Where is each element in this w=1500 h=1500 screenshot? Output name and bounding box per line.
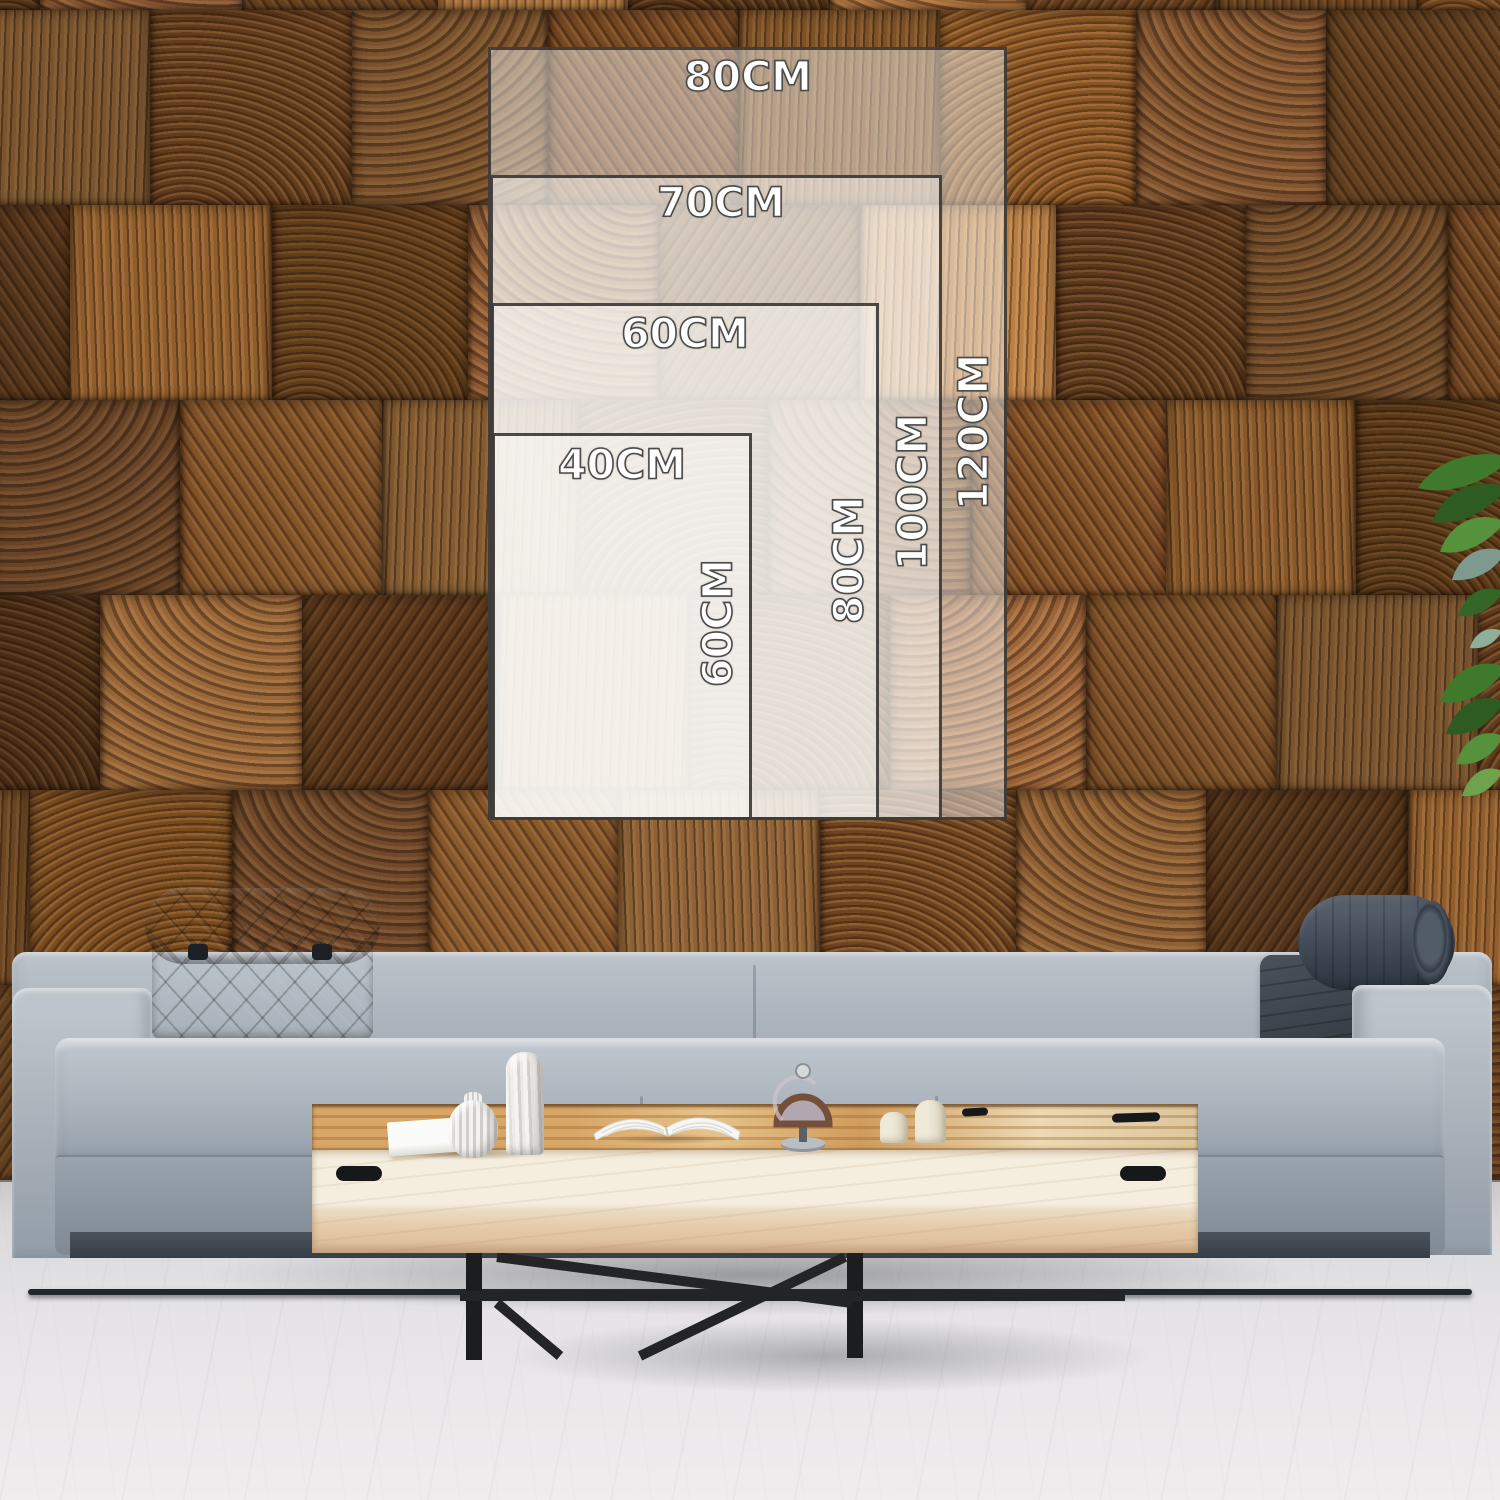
open-book — [592, 1102, 742, 1148]
table-handle-right — [1120, 1166, 1166, 1181]
candle-small — [880, 1112, 908, 1143]
plant-icon — [1390, 430, 1500, 830]
table-mirror — [770, 1062, 836, 1154]
width-label-40cm: 40CM — [558, 445, 686, 486]
width-label-80cm: 80CM — [684, 57, 812, 98]
height-label-60cm: 60CM — [698, 559, 739, 687]
table-top-slot-2 — [1112, 1112, 1160, 1123]
table-front-panel — [312, 1150, 1198, 1253]
height-label-80cm: 80CM — [829, 496, 870, 624]
table-handle-left — [336, 1166, 382, 1181]
tall-vase — [506, 1052, 544, 1155]
product-size-guide-image: 80CM 70CM 60CM 40CM 120CM 100CM 80CM 60C… — [0, 0, 1500, 1500]
table-top-slot-1 — [962, 1107, 988, 1116]
height-label-100cm: 100CM — [893, 414, 934, 570]
candle-large — [915, 1100, 946, 1143]
gourd-vase — [448, 1100, 498, 1158]
width-label-70cm: 70CM — [657, 183, 785, 224]
width-label-60cm: 60CM — [621, 314, 749, 355]
height-label-120cm: 120CM — [954, 354, 995, 510]
